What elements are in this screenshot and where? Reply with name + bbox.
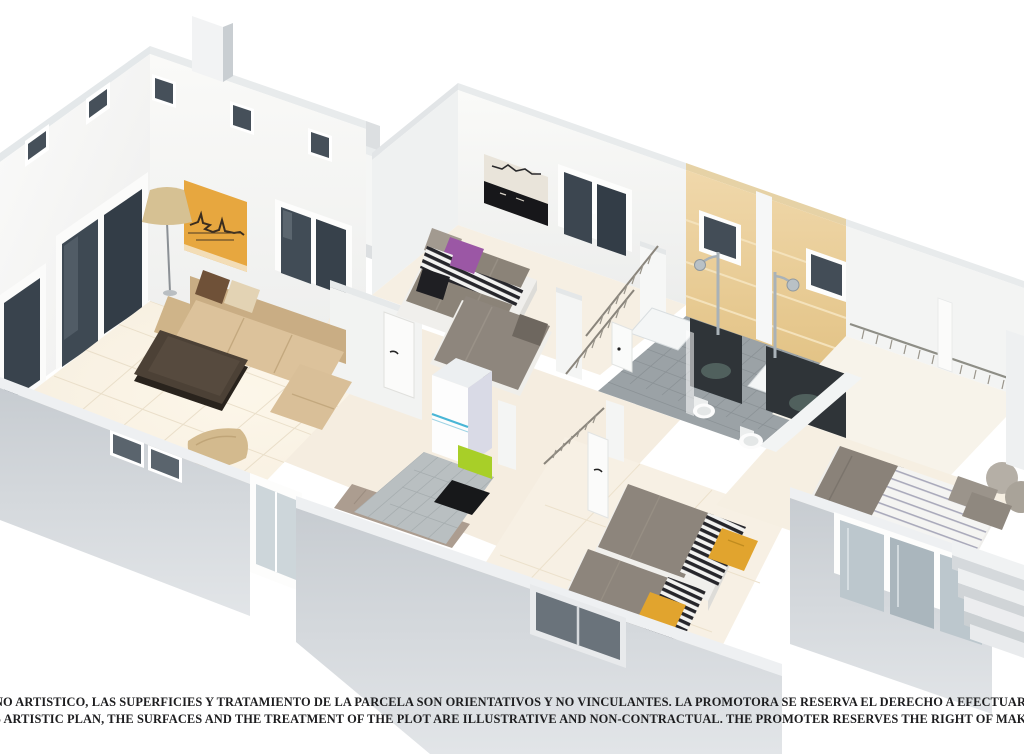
disclaimer: NO ARTISTICO, LAS SUPERFICIES Y TRATAMIE… [0, 694, 1024, 728]
bathroom-door [612, 322, 632, 372]
disclaimer-line-en: S ARTISTIC PLAN, THE SURFACES AND THE TR… [0, 711, 1024, 728]
terrace-glass-door [250, 473, 302, 592]
isometric-floor-plan-render [0, 0, 1024, 754]
entrance-door [384, 312, 414, 398]
glass-screen [686, 330, 694, 416]
basin [701, 363, 731, 379]
chimney-pillar [192, 12, 233, 82]
wardrobe-partition [938, 298, 952, 372]
floor-plan-screenshot: NO ARTISTICO, LAS SUPERFICIES Y TRATAMIE… [0, 0, 1024, 754]
right-wall-band [1006, 330, 1024, 470]
disclaimer-line-es: NO ARTISTICO, LAS SUPERFICIES Y TRATAMIE… [0, 694, 1024, 711]
bathroom-wall-divider-strip [756, 191, 772, 345]
bedroom3-door [588, 432, 608, 518]
